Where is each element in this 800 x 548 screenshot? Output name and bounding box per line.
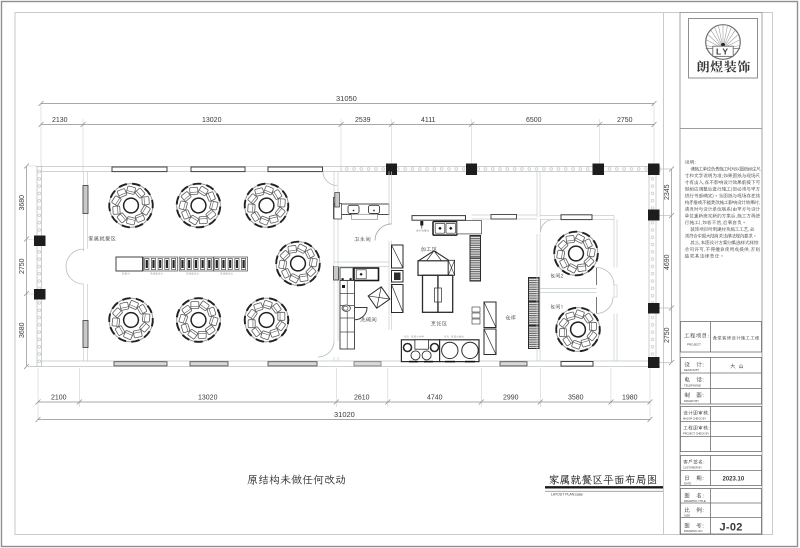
- svg-text:4740: 4740: [427, 395, 443, 402]
- svg-text:PROJECT: PROJECT: [687, 343, 701, 347]
- svg-text:PROJECT CHECK BY: PROJECT CHECK BY: [683, 431, 709, 435]
- svg-text:2990: 2990: [503, 395, 519, 402]
- svg-text:2750: 2750: [664, 327, 671, 343]
- svg-text:2539: 2539: [355, 117, 371, 124]
- svg-text:2610: 2610: [354, 395, 370, 402]
- svg-text:DRAWN BY: DRAWN BY: [684, 399, 699, 403]
- svg-text:2750: 2750: [19, 258, 26, 274]
- svg-text:TELEPHONE: TELEPHONE: [684, 384, 701, 388]
- svg-text:3580: 3580: [568, 395, 584, 402]
- svg-text:1980: 1980: [622, 395, 638, 402]
- svg-text:13020: 13020: [202, 117, 222, 124]
- svg-text:2345: 2345: [664, 184, 671, 200]
- svg-text:2130: 2130: [52, 117, 68, 124]
- svg-text:2023.10: 2023.10: [723, 477, 745, 483]
- svg-text:LAYOUT PLAN:scale: LAYOUT PLAN:scale: [551, 493, 583, 497]
- svg-text:DESIGN BY: DESIGN BY: [684, 368, 699, 372]
- svg-text:MAJOR CHECK BY: MAJOR CHECK BY: [683, 416, 706, 420]
- svg-text:CUSTOMER BY: CUSTOMER BY: [683, 465, 702, 469]
- svg-text:31020: 31020: [334, 410, 355, 419]
- svg-text:J-02: J-02: [720, 522, 743, 534]
- svg-text:DRAWING TITLE: DRAWING TITLE: [684, 499, 706, 503]
- svg-text:13020: 13020: [198, 395, 218, 402]
- svg-text:3680: 3680: [19, 195, 26, 211]
- svg-text:6500: 6500: [526, 117, 542, 124]
- svg-text:3680: 3680: [19, 322, 26, 338]
- svg-text:31050: 31050: [336, 94, 357, 103]
- svg-text:2100: 2100: [51, 395, 67, 402]
- svg-text:DATE: DATE: [684, 482, 691, 486]
- svg-text:4111: 4111: [421, 117, 436, 124]
- svg-text:LY: LY: [716, 47, 730, 57]
- svg-text:SIZE: SIZE: [684, 513, 690, 517]
- svg-text:DRAWING NO: DRAWING NO: [684, 529, 703, 533]
- svg-text:2750: 2750: [617, 117, 633, 124]
- svg-text:4690: 4690: [664, 254, 671, 270]
